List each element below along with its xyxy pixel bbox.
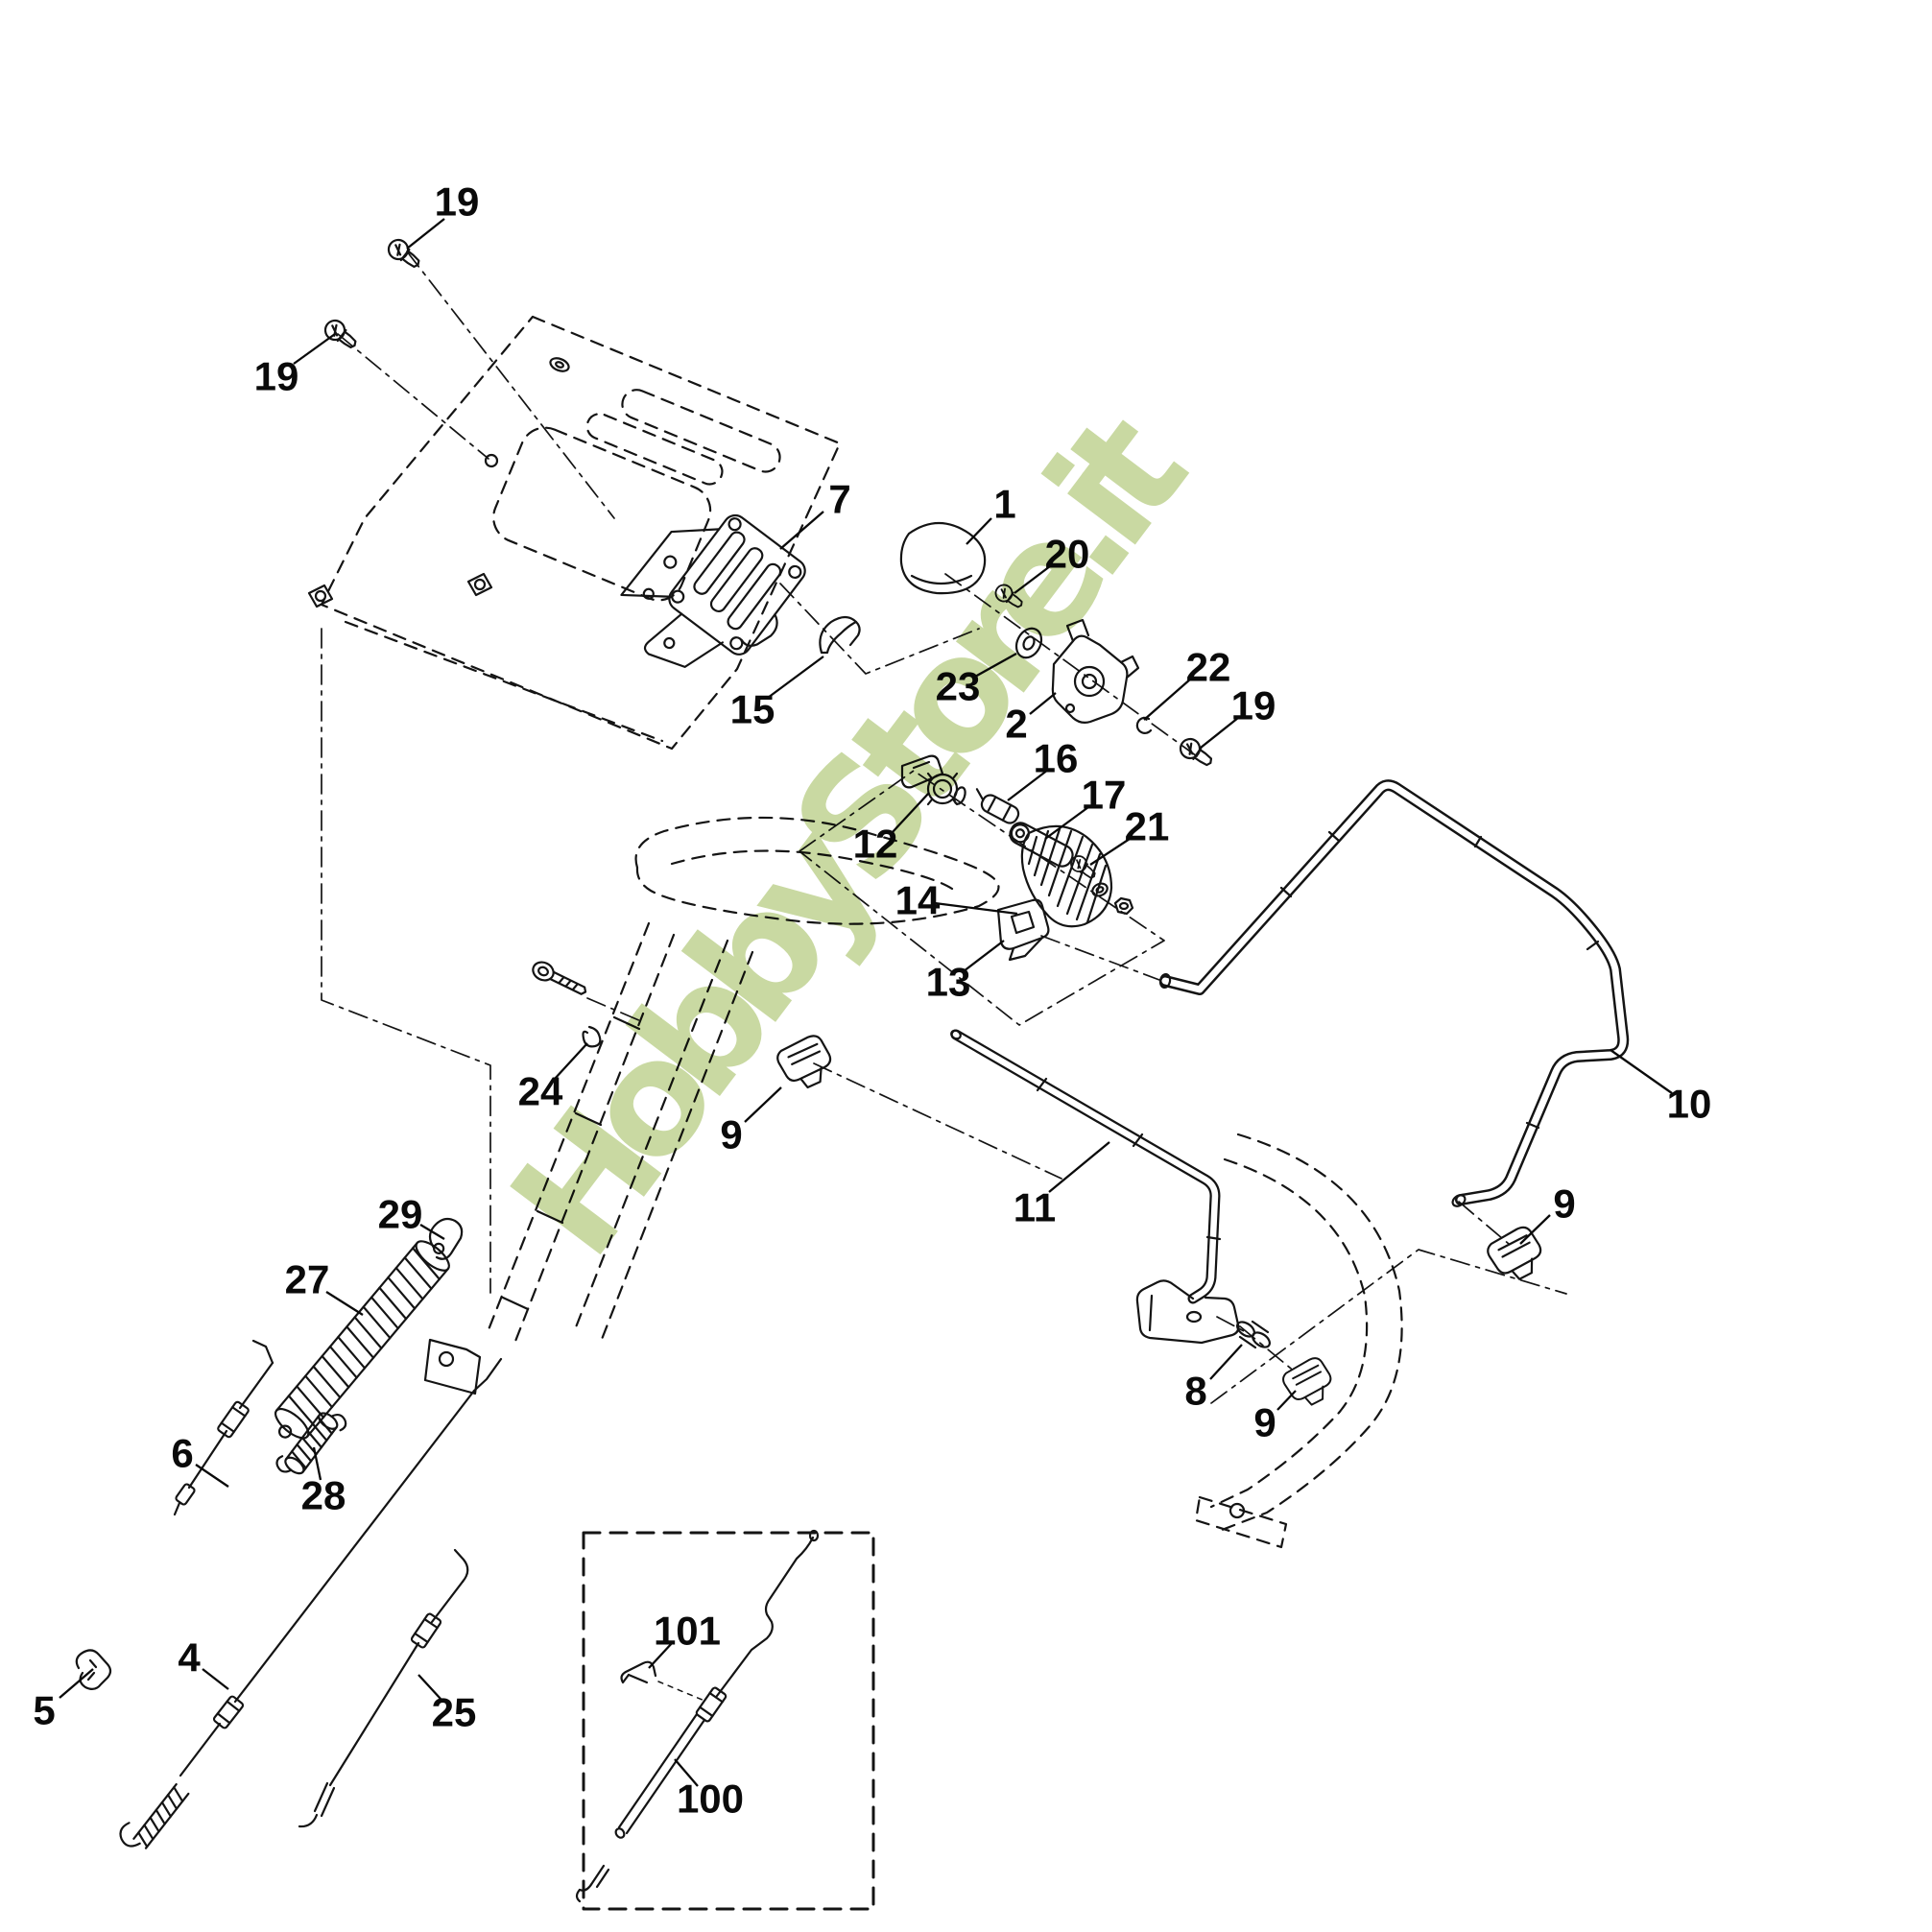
leader-line-4 (203, 1669, 228, 1689)
part-100-cable (577, 1531, 818, 1901)
part-label-2: 2 (1005, 702, 1027, 747)
part-label-10: 10 (1667, 1082, 1712, 1127)
part-label-1: 1 (993, 482, 1015, 527)
part-label-9: 9 (1253, 1400, 1276, 1445)
part-14-trigger (1022, 826, 1111, 926)
part-label-14: 14 (895, 878, 941, 923)
leader-line-27 (326, 1292, 363, 1315)
part-label-9: 9 (1553, 1181, 1575, 1227)
part-29-hook (430, 1219, 462, 1259)
part-13-clamp (998, 900, 1048, 960)
part-label-19: 19 (435, 179, 480, 225)
part-1-cap (901, 523, 985, 593)
lower-handle-dashed (1196, 1134, 1402, 1547)
part-label-101: 101 (654, 1609, 721, 1654)
leader-line-8 (1210, 1345, 1242, 1379)
inset-box (584, 1533, 873, 1909)
part-label-25: 25 (432, 1690, 477, 1735)
handle-spring-bracket (425, 1340, 480, 1394)
leader-line-6 (196, 1465, 228, 1487)
part-label-13: 13 (926, 960, 971, 1005)
clip-9-handle (775, 1034, 835, 1092)
leader-line-22 (1144, 679, 1191, 720)
leader-line-19 (294, 334, 335, 364)
leader-line-2 (1030, 693, 1056, 714)
leader-line-9 (745, 1087, 781, 1122)
part-label-6: 6 (171, 1431, 193, 1476)
exploded-parts-drawing: 1919712023222191516172112141324911109892… (0, 0, 1932, 1932)
part-label-24: 24 (518, 1069, 563, 1114)
part-label-21: 21 (1125, 804, 1170, 849)
part-label-27: 27 (285, 1257, 330, 1302)
clip-9-lower (1279, 1355, 1336, 1410)
part-7-bracket (603, 488, 818, 706)
part-label-100: 100 (677, 1777, 744, 1822)
part-label-15: 15 (730, 687, 775, 732)
part-10-bail-arm (1159, 785, 1623, 1208)
part-6-cable (175, 1341, 273, 1515)
screw-19-left (322, 317, 361, 353)
leader-line-10 (1610, 1050, 1672, 1093)
leader-line-9 (1277, 1391, 1296, 1410)
part-label-20: 20 (1045, 532, 1090, 577)
leader-line-7 (780, 512, 823, 549)
leader-line-5 (60, 1669, 93, 1698)
alignment-lines (322, 251, 1566, 1403)
part-label-12: 12 (853, 822, 898, 867)
screw-20 (992, 582, 1026, 611)
part-label-22: 22 (1186, 645, 1231, 690)
part-22-clip (1137, 718, 1151, 733)
part-label-11: 11 (1014, 1185, 1056, 1230)
clip-9-right (1484, 1224, 1546, 1285)
part-label-19: 19 (254, 354, 299, 399)
part-label-29: 29 (378, 1192, 423, 1237)
part-label-7: 7 (828, 477, 850, 522)
part-101-clip (622, 1662, 704, 1701)
part-label-28: 28 (301, 1473, 346, 1518)
part-label-17: 17 (1082, 773, 1127, 818)
part-label-16: 16 (1034, 736, 1079, 781)
leader-line-1 (966, 518, 991, 544)
part-24-bolt (530, 959, 600, 1046)
part-label-23: 23 (936, 664, 981, 709)
part-label-19: 19 (1231, 683, 1276, 728)
part-label-4: 4 (178, 1635, 201, 1681)
part-2-bracket (1053, 620, 1138, 723)
part-16-cable-end (969, 787, 1020, 825)
console-panel (309, 317, 840, 749)
part-11-rod (950, 1029, 1239, 1343)
leader-line-23 (975, 654, 1016, 677)
part-25-cable (299, 1550, 467, 1826)
parts-diagram-page: 1919712023222191516172112141324911109892… (0, 0, 1932, 1932)
leader-line-15 (768, 656, 823, 698)
part-label-8: 8 (1184, 1369, 1206, 1414)
part-label-9: 9 (720, 1112, 742, 1157)
part-label-5: 5 (33, 1688, 55, 1733)
leader-line-11 (1049, 1142, 1109, 1192)
